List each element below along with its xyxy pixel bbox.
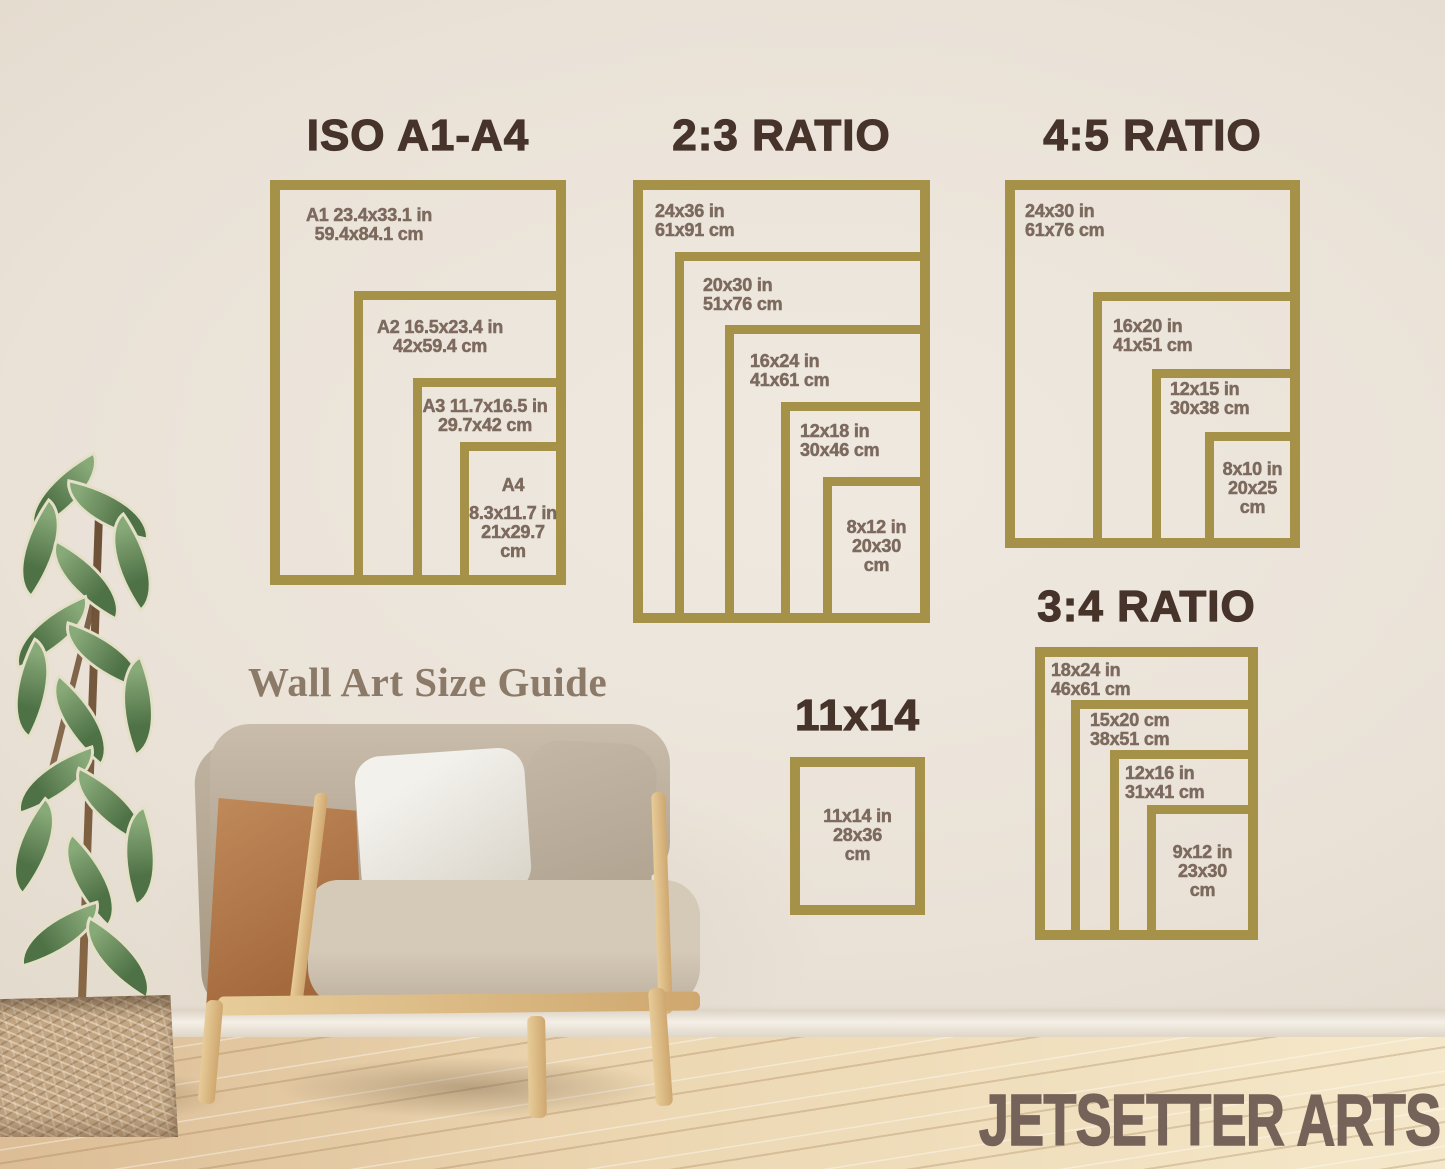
label-line: 15x20 cm <box>1090 711 1169 730</box>
label-line: 24x36 in <box>655 202 734 221</box>
section-4-5-ratio: 4:5 RATIO 24x30 in 61x76 cm 16x20 in 41x… <box>1005 112 1300 548</box>
chair-wood-front-rail <box>218 991 700 1015</box>
label-line: 51x76 cm <box>703 295 782 314</box>
label-line: cm <box>462 542 564 561</box>
label-12x18: 12x18 in 30x46 cm <box>800 422 879 460</box>
plant-leaf <box>58 479 157 541</box>
label-line: 16x24 in <box>750 352 829 371</box>
label-line: 8.3x11.7 in <box>462 504 564 523</box>
label-line: 41x51 cm <box>1113 336 1192 355</box>
label-line: cm <box>1206 498 1299 517</box>
label-8x12: 8x12 in 20x30 cm <box>824 518 929 575</box>
label-line: 46x61 cm <box>1051 680 1130 699</box>
label-line: 61x76 cm <box>1025 221 1104 240</box>
potted-plant <box>0 462 200 1169</box>
section-iso-a1-a4: ISO A1-A4 A1 23.4x33.1 in 59.4x84.1 cm A… <box>270 112 566 585</box>
label-12x15: 12x15 in 30x38 cm <box>1170 380 1249 418</box>
label-a3: A3 11.7x16.5 in 29.7x42 cm <box>410 397 560 435</box>
label-line: 12x15 in <box>1170 380 1249 399</box>
section-11x14: 11x14 11x14 in 28x36 cm <box>790 692 925 915</box>
chair-wood-left-leg <box>198 999 224 1104</box>
label-line: 12x18 in <box>800 422 879 441</box>
label-a4: A4 8.3x11.7 in 21x29.7 cm <box>462 476 564 561</box>
woven-basket-planter <box>0 995 178 1137</box>
label-24x36: 24x36 in 61x91 cm <box>655 202 734 240</box>
label-line: 8x10 in <box>1206 460 1299 479</box>
label-9x12: 9x12 in 23x30 cm <box>1148 843 1257 900</box>
armchair <box>190 718 740 1120</box>
wall-art-size-guide-mockup: ISO A1-A4 A1 23.4x33.1 in 59.4x84.1 cm A… <box>0 0 1445 1169</box>
section-title: ISO A1-A4 <box>270 112 566 162</box>
label-line: 20x30 in <box>703 276 782 295</box>
size-diagram-4-5: 24x30 in 61x76 cm 16x20 in 41x51 cm 12x1… <box>1005 180 1300 548</box>
label-11x14: 11x14 in 28x36 cm <box>790 807 925 864</box>
label-12x16: 12x16 in 31x41 cm <box>1125 764 1204 802</box>
section-title: 4:5 RATIO <box>1005 112 1300 162</box>
chair-wood-center-leg <box>527 1016 547 1118</box>
label-line: 12x16 in <box>1125 764 1204 783</box>
label-line: 8x12 in <box>824 518 929 537</box>
label-line: A1 23.4x33.1 in <box>294 206 444 225</box>
label-15x20: 15x20 cm 38x51 cm <box>1090 711 1169 749</box>
label-a1: A1 23.4x33.1 in 59.4x84.1 cm <box>294 206 444 244</box>
label-8x10: 8x10 in 20x25 cm <box>1206 460 1299 517</box>
label-line: 24x30 in <box>1025 202 1104 221</box>
label-line: 21x29.7 <box>462 523 564 542</box>
brand-watermark: JETSETTER ARTS <box>978 1080 1440 1162</box>
label-24x30: 24x30 in 61x76 cm <box>1025 202 1104 240</box>
label-18x24: 18x24 in 46x61 cm <box>1051 661 1130 699</box>
label-line: 23x30 <box>1148 862 1257 881</box>
label-16x24: 16x24 in 41x61 cm <box>750 352 829 390</box>
label-line: cm <box>824 556 929 575</box>
label-a2: A2 16.5x23.4 in 42x59.4 cm <box>365 318 515 356</box>
size-diagram-3-4: 18x24 in 46x61 cm 15x20 cm 38x51 cm 12x1… <box>1035 647 1258 940</box>
label-line: A3 11.7x16.5 in <box>410 397 560 416</box>
label-line: 42x59.4 cm <box>365 337 515 356</box>
label-line: cm <box>1148 881 1257 900</box>
label-line: 29.7x42 cm <box>410 416 560 435</box>
label-line: 30x46 cm <box>800 441 879 460</box>
label-line: 20x25 <box>1206 479 1299 498</box>
label-line: 61x91 cm <box>655 221 734 240</box>
label-line: 41x61 cm <box>750 371 829 390</box>
section-2-3-ratio: 2:3 RATIO 24x36 in 61x91 cm 20x30 in 51x… <box>633 112 930 623</box>
section-title: 2:3 RATIO <box>633 112 930 162</box>
label-line: 28x36 <box>790 826 925 845</box>
label-line: 16x20 in <box>1113 317 1192 336</box>
label-line: A2 16.5x23.4 in <box>365 318 515 337</box>
label-line: 31x41 cm <box>1125 783 1204 802</box>
label-line: 30x38 cm <box>1170 399 1249 418</box>
size-diagram-2-3: 24x36 in 61x91 cm 20x30 in 51x76 cm 16x2… <box>633 180 930 623</box>
label-20x30: 20x30 in 51x76 cm <box>703 276 782 314</box>
label-line: cm <box>790 845 925 864</box>
label-line: 11x14 in <box>790 807 925 826</box>
label-line: A4 <box>462 476 564 495</box>
section-3-4-ratio: 3:4 RATIO 18x24 in 46x61 cm 15x20 cm 38x… <box>1035 583 1258 940</box>
label-line: 9x12 in <box>1148 843 1257 862</box>
size-diagram-iso: A1 23.4x33.1 in 59.4x84.1 cm A2 16.5x23.… <box>270 180 566 585</box>
label-line: 59.4x84.1 cm <box>294 225 444 244</box>
guide-caption: Wall Art Size Guide <box>248 658 607 706</box>
size-diagram-11x14: 11x14 in 28x36 cm <box>790 757 925 915</box>
label-line: 20x30 <box>824 537 929 556</box>
chair-seat-cushion <box>308 880 700 1008</box>
label-line: 38x51 cm <box>1090 730 1169 749</box>
label-16x20: 16x20 in 41x51 cm <box>1113 317 1192 355</box>
section-title: 11x14 <box>790 692 925 742</box>
label-line: 18x24 in <box>1051 661 1130 680</box>
section-title: 3:4 RATIO <box>1035 583 1258 633</box>
